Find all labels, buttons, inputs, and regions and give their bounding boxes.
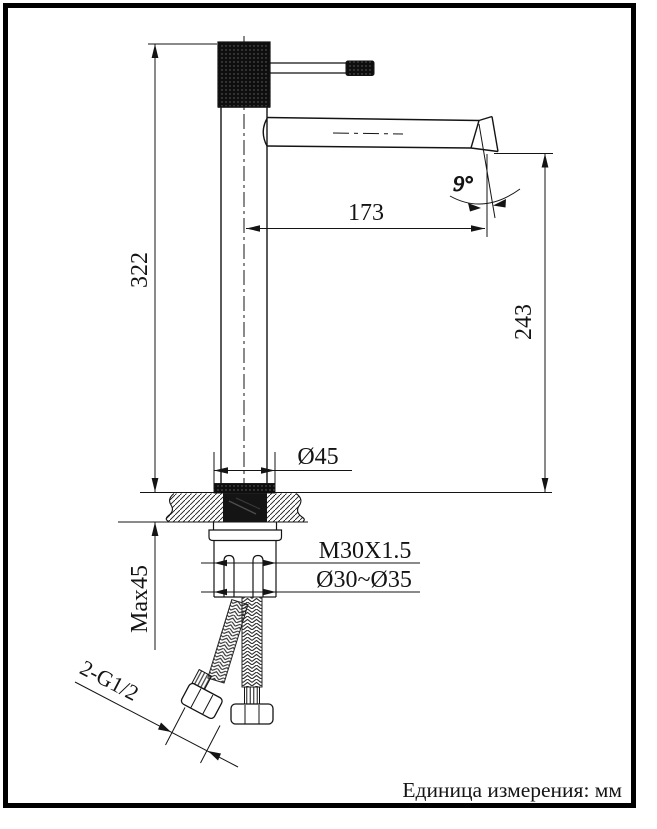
mounting-thread-label: M30X1.5 xyxy=(319,538,412,564)
outlet-angle-label: 9° xyxy=(453,171,473,196)
base-diameter-label: Ø45 xyxy=(297,444,338,470)
faucet-handle xyxy=(218,42,374,107)
mounting-hardware xyxy=(209,522,282,597)
hole-range-label: Ø30~Ø35 xyxy=(316,567,412,593)
dimension-base-diameter: Ø45 xyxy=(214,444,352,489)
shank-through-counter xyxy=(223,494,267,522)
max-thickness-label: Max45 xyxy=(127,565,153,633)
dimension-spout-reach: 173 xyxy=(246,200,485,232)
faucet-dimension-drawing: 322 173 243 9° Ø45 M30X1.5 xyxy=(0,0,657,829)
mounting-nut-flange xyxy=(209,530,282,541)
hex-nut-right xyxy=(231,704,273,724)
hose-connection-label: 2-G1/2 xyxy=(76,655,143,706)
spout-reach-label: 173 xyxy=(348,200,384,226)
hex-nut-left xyxy=(180,682,223,720)
inlet-tube-right xyxy=(253,556,263,598)
overall-height-label: 322 xyxy=(127,252,153,288)
base-escutcheon xyxy=(214,484,275,494)
dimension-outlet-angle: 9° xyxy=(450,124,520,237)
lever-grip xyxy=(346,61,374,76)
dimension-overall-height: 322 xyxy=(127,44,217,492)
countertop-section xyxy=(118,493,552,523)
unit-note: Единица измерения: мм xyxy=(402,778,622,802)
braided-hose-right xyxy=(242,597,262,687)
faucet-spout xyxy=(267,117,498,152)
hose-collar-right xyxy=(245,687,260,704)
dimension-max-thickness: Max45 xyxy=(127,522,158,650)
outlet-height-label: 243 xyxy=(511,304,537,340)
supply-hose-left xyxy=(180,600,248,720)
technical-drawing-page: 322 173 243 9° Ø45 M30X1.5 xyxy=(0,0,657,829)
spout-centerline xyxy=(333,133,403,134)
